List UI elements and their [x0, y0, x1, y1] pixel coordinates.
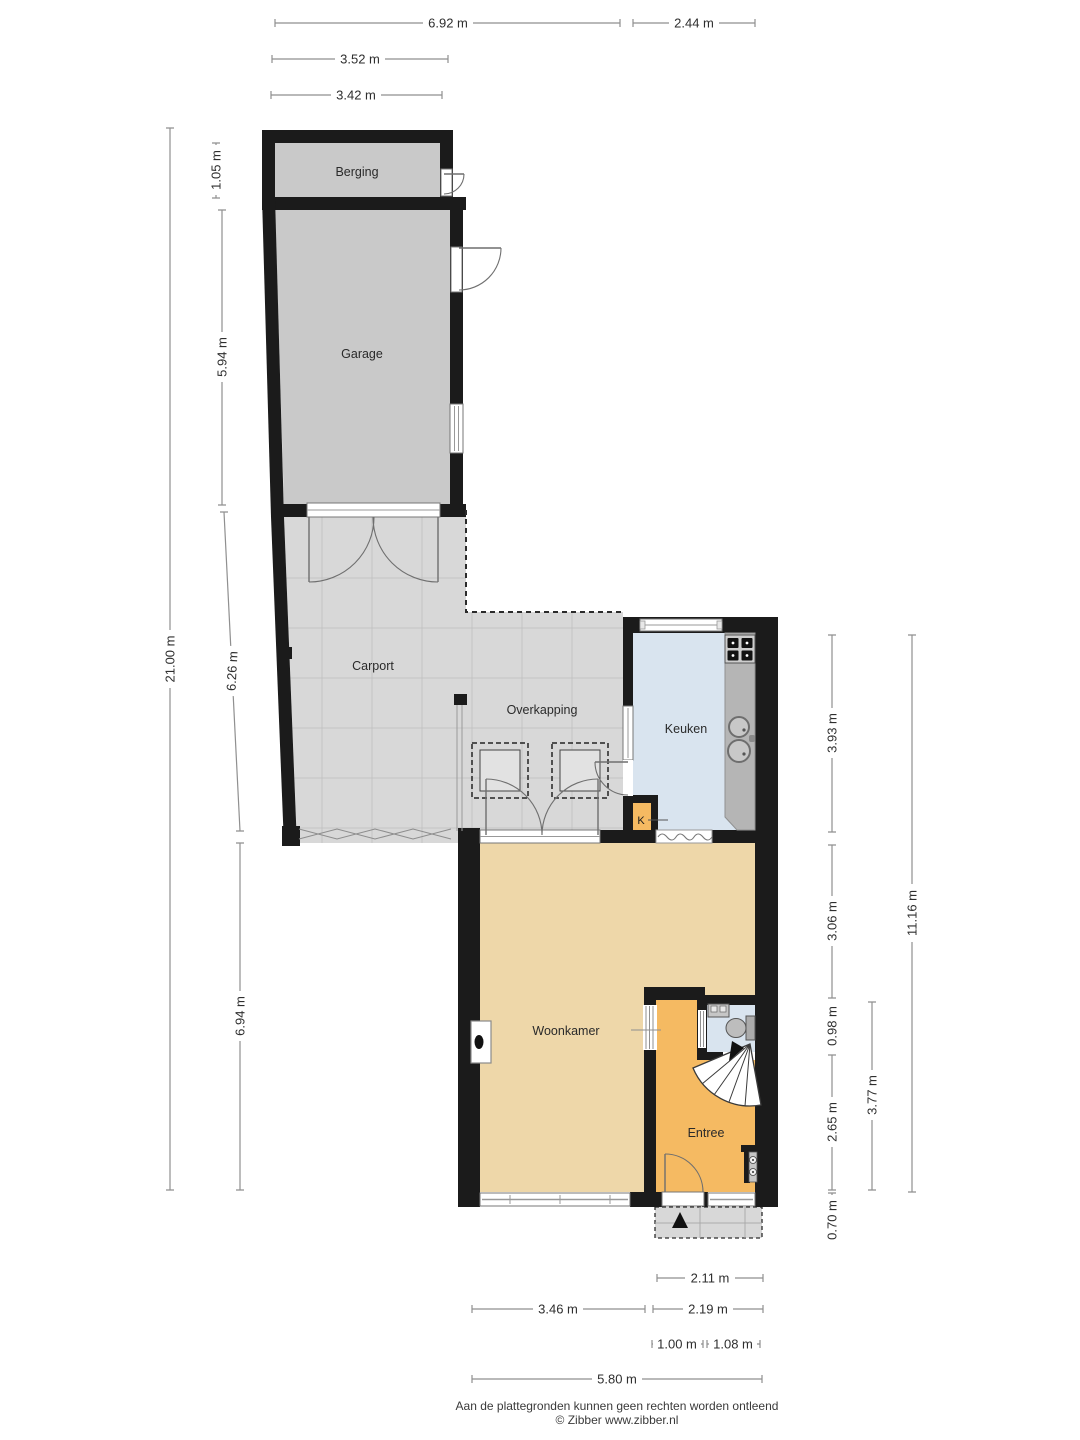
room-label-berging: Berging [335, 165, 378, 179]
dim-top-3-42: 3.42 m [271, 88, 442, 103]
wall [262, 130, 453, 143]
dim-left-6-26: 6.26 m [220, 512, 244, 831]
wall [438, 504, 466, 517]
floorplan-page: Berging Garage Carport Overkapping Keuke… [0, 0, 1080, 1440]
footer-disclaimer: Aan de plattegronden kunnen geen rechten… [456, 1399, 779, 1413]
garage-window [450, 404, 463, 453]
svg-text:2.11 m: 2.11 m [691, 1271, 730, 1286]
wall [282, 826, 300, 846]
room-label-kast: K [637, 815, 645, 827]
svg-text:6.26 m: 6.26 m [223, 651, 240, 691]
dim-left-21-00: 21.00 m [162, 128, 178, 1190]
svg-text:21.00 m: 21.00 m [163, 636, 178, 683]
dim-right-0-70: 0.70 m [824, 1193, 840, 1245]
wall [262, 197, 466, 210]
svg-text:5.94 m: 5.94 m [215, 337, 230, 377]
dim-bottom-3-46: 3.46 m [472, 1302, 645, 1317]
dim-right-2-65: 2.65 m [824, 1055, 840, 1190]
room-label-overkapping: Overkapping [507, 703, 578, 717]
svg-text:1.08 m: 1.08 m [713, 1337, 753, 1352]
wall [651, 803, 658, 830]
wall [271, 504, 309, 517]
overkapping-dashed-boundary [466, 510, 623, 612]
dim-top-3-52: 3.52 m [272, 52, 448, 67]
svg-text:0.98 m: 0.98 m [825, 1006, 840, 1046]
svg-text:3.93 m: 3.93 m [825, 713, 840, 753]
room-label-keuken: Keuken [665, 722, 707, 736]
wall [630, 1192, 663, 1207]
svg-text:3.77 m: 3.77 m [865, 1075, 880, 1115]
dim-bottom-5-80: 5.80 m [472, 1372, 762, 1387]
keuken-window-north [640, 619, 722, 631]
porch [655, 1207, 762, 1238]
toilet-door [698, 1010, 706, 1048]
dim-left-5-94: 5.94 m [214, 210, 230, 505]
wall [755, 617, 778, 1207]
footer-credit: © Zibber www.zibber.nl [556, 1413, 679, 1427]
room-label-woonkamer: Woonkamer [532, 1024, 599, 1038]
wall [644, 987, 705, 1000]
svg-text:0.70 m: 0.70 m [825, 1200, 840, 1240]
dim-top-2-44: 2.44 m [633, 16, 755, 31]
dim-bottom-2-19: 2.19 m [653, 1302, 763, 1317]
wall [458, 828, 480, 1207]
dim-right-11-16: 11.16 m [904, 635, 920, 1192]
wall [281, 647, 292, 659]
svg-text:3.46 m: 3.46 m [538, 1302, 578, 1317]
svg-text:1.00 m: 1.00 m [657, 1337, 697, 1352]
dim-right-3-93: 3.93 m [824, 635, 840, 832]
svg-text:3.52 m: 3.52 m [340, 52, 380, 67]
dim-right-3-77: 3.77 m [864, 1002, 880, 1190]
garage-door [451, 247, 501, 292]
dim-right-3-06: 3.06 m [824, 845, 840, 998]
floors [260, 143, 755, 1192]
svg-text:2.44 m: 2.44 m [674, 16, 714, 31]
svg-text:11.16 m: 11.16 m [905, 890, 920, 936]
room-label-garage: Garage [341, 347, 383, 361]
svg-text:3.06 m: 3.06 m [825, 901, 840, 941]
floorplan-drawing: Berging Garage Carport Overkapping Keuke… [0, 0, 1080, 1440]
dim-bottom-1-00: 1.00 m [652, 1337, 703, 1352]
dim-left-1-05: 1.05 m [208, 143, 224, 198]
svg-text:2.65 m: 2.65 m [825, 1102, 840, 1142]
dim-right-0-98: 0.98 m [824, 1001, 840, 1051]
meter-cupboard-icon [749, 1152, 757, 1182]
svg-text:2.19 m: 2.19 m [688, 1302, 728, 1317]
pillar [560, 750, 600, 791]
keuken-window-west [623, 706, 633, 760]
wall [262, 130, 275, 197]
svg-text:3.42 m: 3.42 m [336, 88, 376, 103]
dim-top-6-92: 6.92 m [275, 16, 620, 31]
wall [712, 830, 757, 843]
svg-text:5.80 m: 5.80 m [597, 1372, 637, 1387]
svg-text:1.05 m: 1.05 m [209, 150, 224, 190]
room-label-entree: Entree [688, 1126, 725, 1140]
dim-left-6-94: 6.94 m [232, 843, 248, 1190]
berging-door [441, 169, 464, 196]
entree-window-south [708, 1193, 755, 1206]
wall [623, 795, 658, 803]
svg-text:6.92 m: 6.92 m [428, 16, 468, 31]
cooktop-icon [725, 635, 755, 663]
room-label-carport: Carport [352, 659, 394, 673]
dim-bottom-2-11: 2.11 m [657, 1271, 763, 1286]
dim-bottom-1-08: 1.08 m [707, 1337, 760, 1352]
svg-text:6.94 m: 6.94 m [233, 996, 248, 1036]
woonkamer-window-south [480, 1193, 630, 1206]
keuken-open-passage [656, 830, 712, 843]
wall [450, 197, 463, 517]
footer: Aan de plattegronden kunnen geen rechten… [456, 1399, 779, 1427]
